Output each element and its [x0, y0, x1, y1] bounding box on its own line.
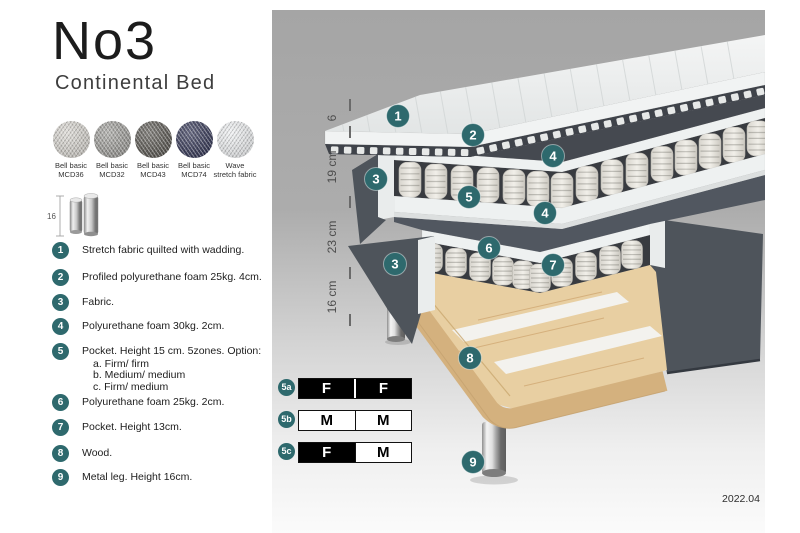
fabric-swatch-label: Wavestretch fabric: [207, 161, 263, 179]
fabric-swatch: [217, 121, 254, 158]
legend-text: Profiled polyurethane foam 25kg. 4cm.: [82, 271, 262, 283]
product-title: No3: [52, 14, 157, 68]
svg-text:5: 5: [465, 190, 472, 205]
version-label: 2022.04: [690, 493, 760, 505]
svg-text:1: 1: [394, 109, 401, 124]
svg-text:2: 2: [469, 128, 476, 143]
legend-sub-option: a. Firm/ firm: [93, 358, 149, 370]
legend-number-badge: 4: [52, 318, 69, 335]
legend-item: 8Wood.: [52, 445, 112, 462]
legend-number-badge: 7: [52, 419, 69, 436]
legend-item: 9Metal leg. Height 16cm.: [52, 469, 192, 486]
legend-text: Wood.: [82, 447, 112, 459]
legend-item: 1Stretch fabric quilted with wadding.: [52, 242, 244, 259]
fabric-swatch: [53, 121, 90, 158]
marker-5: 5: [458, 186, 481, 209]
dimension-label: 23 cm: [325, 221, 339, 254]
marker-6: 6: [478, 237, 501, 260]
leg-cylinders: [70, 194, 98, 237]
product-subtitle: Continental Bed: [55, 72, 215, 95]
legend-number-badge: 1: [52, 242, 69, 259]
svg-text:4: 4: [541, 206, 549, 221]
legend-item: 2Profiled polyurethane foam 25kg. 4cm.: [52, 269, 262, 286]
base-side-fabric-right: [650, 218, 763, 373]
marker-8: 8: [459, 347, 482, 370]
firmness-row-badge: 5c: [278, 443, 295, 460]
legend-item: 3Fabric.: [52, 294, 114, 311]
legend-text: Pocket. Height 13cm.: [82, 421, 182, 433]
fabric-swatch: [135, 121, 172, 158]
metal-leg-front: [482, 422, 506, 477]
firmness-row-badge: 5a: [278, 379, 295, 396]
svg-text:7: 7: [549, 258, 556, 273]
dimension-label: 16 cm: [325, 281, 339, 314]
marker-9: 9: [462, 451, 485, 474]
legend-text: Metal leg. Height 16cm.: [82, 471, 192, 483]
firmness-row-badge: 5b: [278, 411, 295, 428]
legend-number-badge: 6: [52, 394, 69, 411]
legend-text: Fabric.: [82, 296, 114, 308]
firmness-row-bar: FF: [298, 378, 412, 399]
base-frame-end-right: [650, 216, 665, 268]
legend-text: Pocket. Height 15 cm. 5zones. Option:: [82, 345, 261, 357]
marker-2: 2: [462, 124, 485, 147]
legend-number-badge: 2: [52, 269, 69, 286]
page: No3 Continental Bed Bell basicMCD36Bell …: [0, 0, 800, 533]
marker-4: 4: [534, 202, 557, 225]
leg-height-label: 16: [47, 212, 56, 221]
dimension-label: 6: [325, 114, 339, 121]
marker-1: 1: [387, 105, 410, 128]
legend-number-badge: 3: [52, 294, 69, 311]
fabric-swatch: [176, 121, 213, 158]
firmness-cell: F: [299, 379, 356, 398]
svg-text:8: 8: [466, 351, 473, 366]
leg-spec-icon: 16: [46, 188, 116, 249]
svg-text:9: 9: [469, 455, 476, 470]
legend-sub-option: c. Firm/ medium: [93, 381, 168, 393]
diagram-panel: 619 cm23 cm16 cm 12435463789 5aFF5bMM5cF…: [272, 10, 765, 533]
marker-4: 4: [542, 145, 565, 168]
legend-text: Stretch fabric quilted with wadding.: [82, 244, 244, 256]
base-frame-end-left: [418, 236, 435, 314]
svg-text:3: 3: [391, 257, 398, 272]
marker-7: 7: [542, 254, 565, 277]
firmness-cell: M: [299, 411, 356, 430]
legend-number-badge: 9: [52, 469, 69, 486]
legend-item: 6Polyurethane foam 25kg. 2cm.: [52, 394, 224, 411]
metal-leg-icon: 16: [46, 188, 116, 244]
dimension-label: 19 cm: [325, 151, 339, 184]
legend-text: Polyurethane foam 25kg. 2cm.: [82, 396, 224, 408]
svg-text:4: 4: [549, 149, 557, 164]
legend-item: 4Polyurethane foam 30kg. 2cm.: [52, 318, 224, 335]
svg-text:6: 6: [485, 241, 492, 256]
firmness-cell: M: [356, 411, 412, 430]
legend-text: Polyurethane foam 30kg. 2cm.: [82, 320, 224, 332]
legend-number-badge: 5: [52, 343, 69, 360]
firmness-row-bar: FM: [298, 442, 412, 463]
marker-3: 3: [365, 168, 388, 191]
firmness-cell: F: [299, 443, 356, 462]
legend-item: 7Pocket. Height 13cm.: [52, 419, 182, 436]
firmness-cell: F: [356, 379, 411, 398]
fabric-swatch: [94, 121, 131, 158]
legend-sub-option: b. Medium/ medium: [93, 369, 185, 381]
legend-number-badge: 8: [52, 445, 69, 462]
svg-text:3: 3: [372, 172, 379, 187]
firmness-row-bar: MM: [298, 410, 412, 431]
legend-item: 5Pocket. Height 15 cm. 5zones. Option:: [52, 343, 261, 360]
marker-3: 3: [384, 253, 407, 276]
firmness-cell: M: [356, 443, 412, 462]
